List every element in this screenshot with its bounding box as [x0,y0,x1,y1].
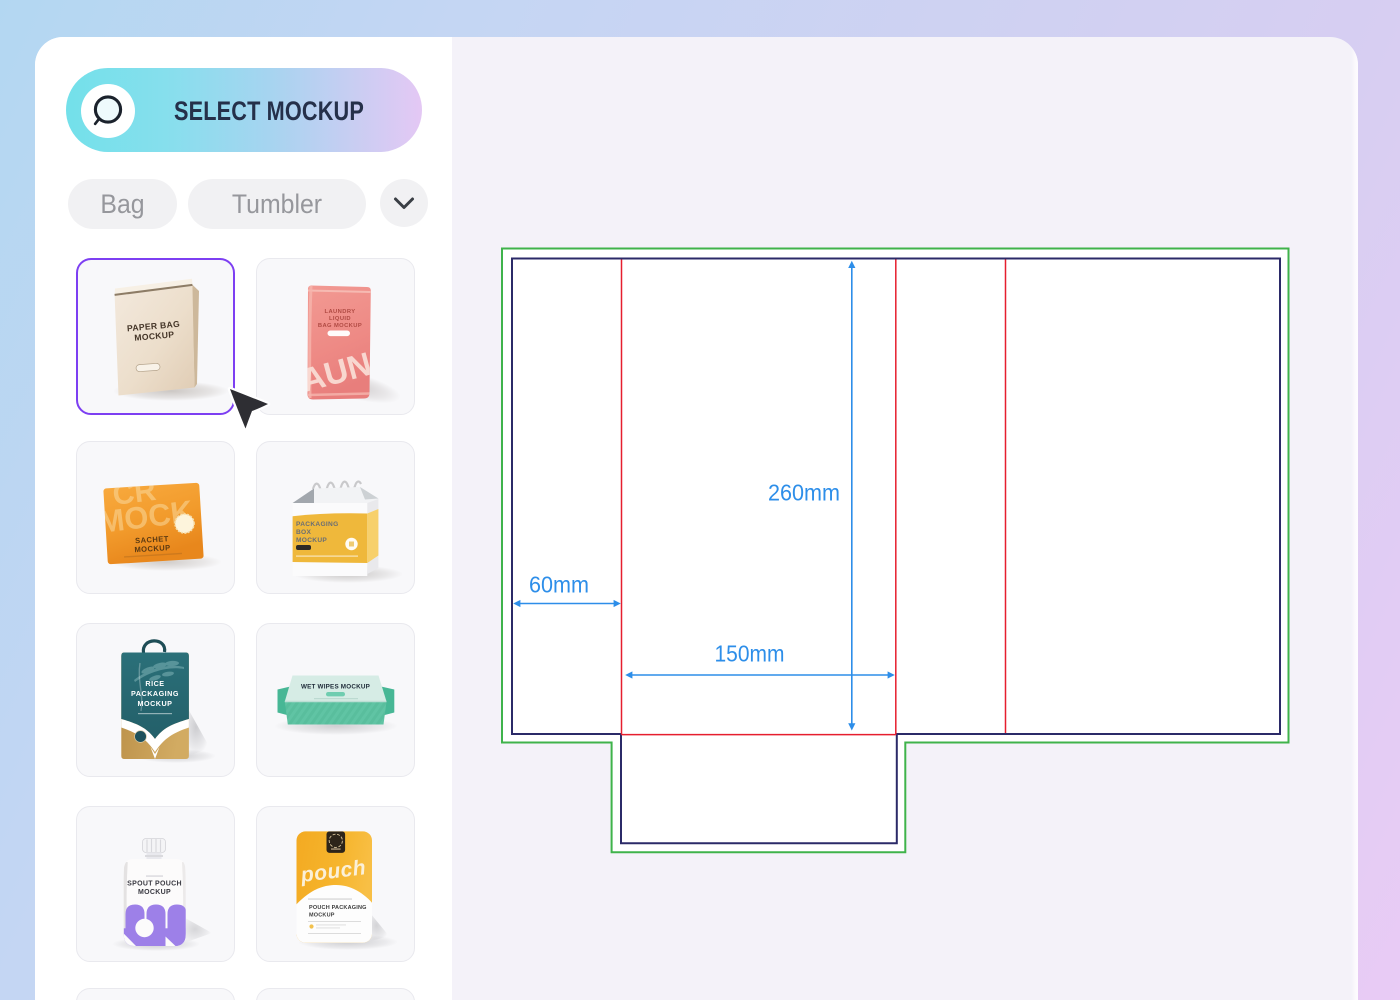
svg-text:BOX: BOX [296,529,311,536]
svg-text:SPOUT POUCH: SPOUT POUCH [127,881,182,888]
svg-text:MOCKUP: MOCKUP [138,699,173,708]
svg-text:MOCKUP: MOCKUP [296,537,327,544]
svg-text:MOCKUP: MOCKUP [138,889,171,896]
svg-text:MOCKUP: MOCKUP [309,913,335,919]
svg-text:260mm: 260mm [768,480,840,506]
svg-text:RICE: RICE [145,679,164,688]
svg-text:PACKAGING: PACKAGING [131,689,179,698]
svg-text:LAUNDRY: LAUNDRY [325,309,356,315]
svg-text:LIQUID: LIQUID [329,316,351,322]
svg-text:150mm: 150mm [715,641,785,667]
svg-text:POUCH PACKAGING: POUCH PACKAGING [309,905,367,911]
svg-text:PACKAGING: PACKAGING [296,521,339,528]
svg-text:WET WIPES MOCKUP: WET WIPES MOCKUP [301,684,370,691]
svg-text:60mm: 60mm [529,572,589,598]
svg-text:BAG MOCKUP: BAG MOCKUP [318,323,362,329]
